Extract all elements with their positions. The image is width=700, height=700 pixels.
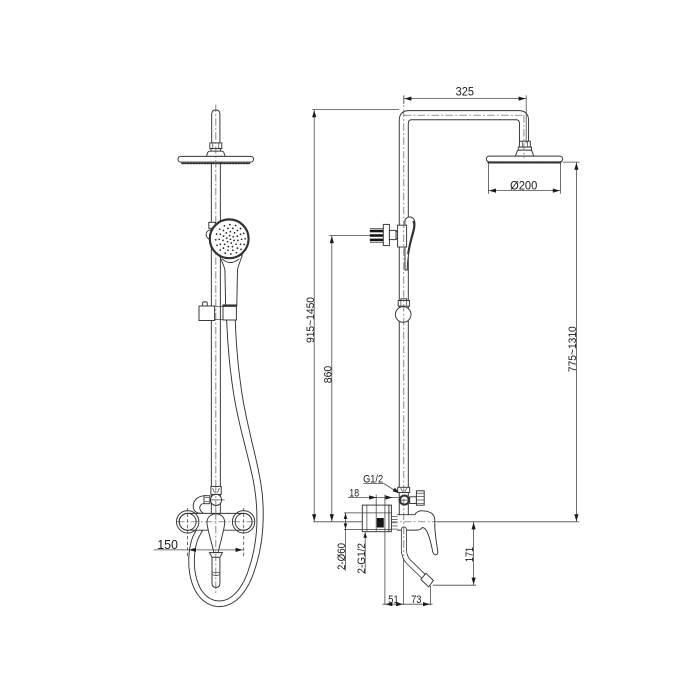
svg-text:2-G1/2: 2-G1/2 <box>356 543 368 574</box>
svg-text:171: 171 <box>464 547 476 562</box>
svg-text:860: 860 <box>323 366 335 383</box>
svg-text:150: 150 <box>157 537 178 552</box>
svg-text:915~1450: 915~1450 <box>305 297 317 343</box>
svg-text:2-Ø60: 2-Ø60 <box>336 543 348 570</box>
svg-text:775~1310: 775~1310 <box>567 326 579 372</box>
svg-text:325: 325 <box>456 85 474 98</box>
svg-text:51: 51 <box>388 594 398 606</box>
svg-text:Ø200: Ø200 <box>510 179 537 192</box>
svg-text:73: 73 <box>411 594 421 606</box>
